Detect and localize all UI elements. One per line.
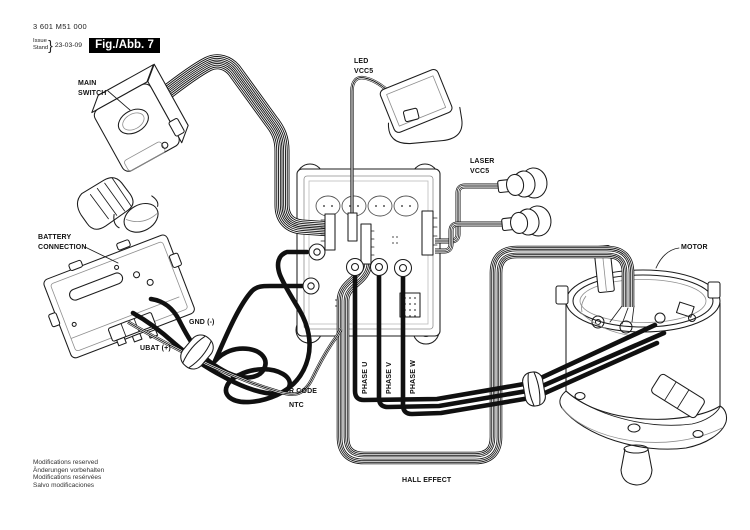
callout-phase-u: PHASE U xyxy=(362,361,369,394)
led-module-drawing xyxy=(377,65,467,153)
callout-phase-w: PHASE W xyxy=(410,360,417,394)
callout-motor: MOTOR xyxy=(681,243,708,253)
figure-number-badge: Fig./Abb. 7 xyxy=(89,38,160,53)
issue-stand-block: Issue Stand } 23-03-09 Fig./Abb. 7 xyxy=(33,37,160,53)
motor-drawing xyxy=(556,245,727,485)
laser-plug-drawing xyxy=(497,167,553,240)
callout-gnd: GND (-) xyxy=(189,318,215,328)
callout-led: LED VCC5 xyxy=(354,57,373,76)
callout-main-switch: MAIN SWITCH xyxy=(78,79,107,98)
brace-glyph: } xyxy=(48,37,53,53)
motor-leader xyxy=(656,248,679,268)
issue-label: Issue xyxy=(33,38,48,45)
laser-wires xyxy=(435,186,510,251)
callout-ntc: NTC xyxy=(289,401,304,411)
spindle-drawing xyxy=(621,449,652,485)
part-number: 3 601 M51 000 xyxy=(33,22,87,31)
stand-label: Stand xyxy=(33,45,48,52)
callout-r-code: R CODE xyxy=(289,387,317,397)
issue-date: 23-03-09 xyxy=(55,42,82,49)
callout-battery-connection: BATTERY CONNECTION xyxy=(38,233,87,252)
motor-boss xyxy=(650,373,706,419)
wiring-diagram-page: 3 601 M51 000 Issue Stand } 23-03-09 Fig… xyxy=(0,0,750,530)
callout-laser: LASER VCC5 xyxy=(470,157,494,176)
modifications-notice: Modifications reserved Änderungen vorbeh… xyxy=(33,459,104,489)
callout-ubat: UBAT (+) xyxy=(140,344,171,354)
wiring-diagram-canvas xyxy=(0,0,750,530)
callout-hall-effect: HALL EFFECT xyxy=(402,476,451,486)
main-switch-drawing xyxy=(34,64,222,254)
callout-phase-v: PHASE V xyxy=(386,362,393,394)
